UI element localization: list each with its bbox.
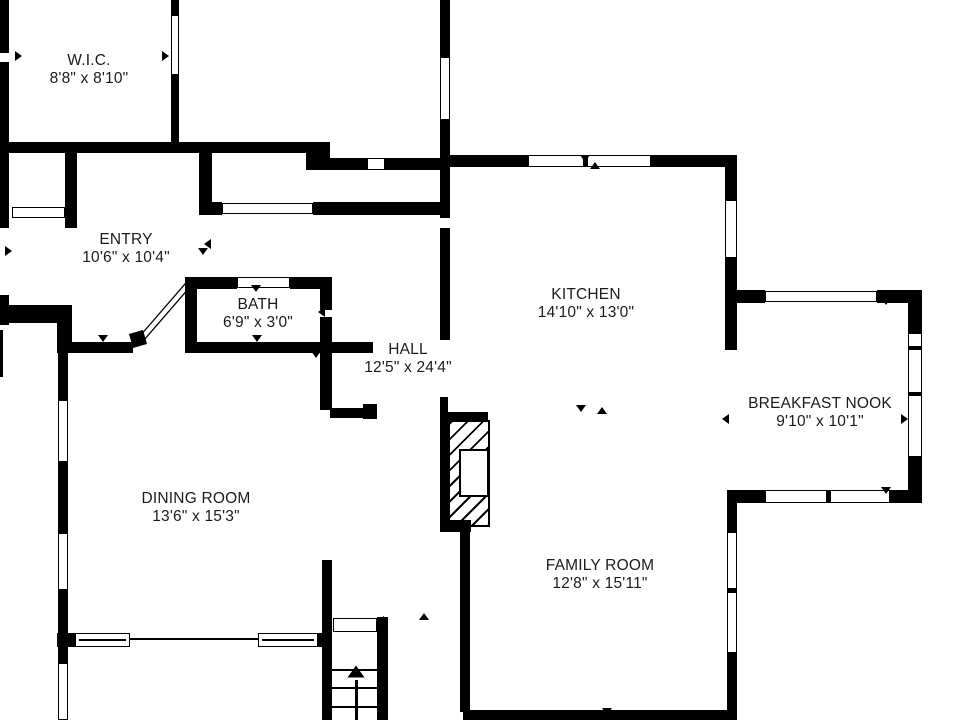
opening-marker-icon: [722, 414, 729, 424]
window: [367, 158, 385, 170]
window: [222, 203, 313, 214]
wall-segment: [890, 490, 922, 503]
room-name-hall: HALL: [364, 341, 452, 359]
room-dimensions-family-room: 12'8" x 15'11": [546, 575, 654, 593]
wall-segment: [57, 633, 75, 647]
room-name-entry: ENTRY: [82, 231, 170, 249]
room-dimensions-kitchen: 14'10" x 13'0": [538, 304, 634, 322]
opening-marker-icon: [901, 414, 908, 424]
room-label-hall: HALL12'5" x 24'4": [364, 341, 452, 377]
window: [333, 618, 377, 632]
door-swing-overlay: [0, 0, 960, 720]
room-label-entry: ENTRY10'6" x 10'4": [82, 231, 170, 267]
room-label-wic: W.I.C.8'8" x 8'10": [50, 52, 129, 88]
wall-segment: [188, 342, 373, 353]
wall-segment: [725, 155, 737, 200]
wall-segment: [171, 75, 179, 145]
opening-marker-icon: [98, 335, 108, 342]
opening-marker-icon: [602, 708, 612, 715]
wall-segment: [440, 120, 450, 218]
wall-segment: [58, 462, 68, 533]
window: [725, 200, 737, 258]
room-name-kitchen: KITCHEN: [538, 286, 634, 304]
wall-segment: [318, 633, 332, 647]
wall-segment: [171, 0, 179, 15]
opening-marker-icon: [311, 351, 321, 358]
room-dimensions-dining-room: 13'6" x 15'3": [142, 508, 251, 526]
wall-segment: [727, 653, 737, 712]
wall-segment: [65, 148, 77, 228]
room-dimensions-hall: 12'5" x 24'4": [364, 359, 452, 377]
opening-marker-icon: [318, 307, 325, 317]
wall-segment: [320, 353, 332, 410]
plan-line: [826, 490, 831, 503]
opening-marker-icon: [580, 155, 590, 162]
window: [440, 57, 450, 120]
room-dimensions-bath: 6'9" x 3'0": [223, 314, 293, 332]
wall-segment: [385, 158, 440, 170]
wall-segment: [725, 258, 737, 350]
window: [765, 291, 877, 302]
room-label-family-room: FAMILY ROOM12'8" x 15'11": [546, 557, 654, 593]
wall-segment: [58, 590, 68, 663]
room-name-dining-room: DINING ROOM: [142, 490, 251, 508]
opening-marker-icon: [590, 162, 600, 169]
opening-marker-icon: [576, 405, 586, 412]
wall-segment: [460, 527, 470, 712]
plan-line: [908, 392, 922, 396]
opening-marker-icon: [377, 616, 384, 626]
room-dimensions-breakfast-nook: 9'10" x 10'1": [748, 413, 892, 431]
wall-segment: [323, 158, 367, 170]
opening-marker-icon: [881, 298, 891, 305]
stairs-up-arrow-icon: [348, 666, 365, 678]
room-label-breakfast-nook: BREAKFAST NOOK9'10" x 10'1": [748, 395, 892, 431]
opening-marker-icon: [881, 487, 891, 494]
wall-segment: [0, 142, 330, 153]
room-name-bath: BATH: [223, 296, 293, 314]
opening-marker-icon: [419, 613, 429, 620]
floor-plan: W.I.C.8'8" x 8'10"ENTRY10'6" x 10'4"BATH…: [0, 0, 960, 720]
plan-line: [355, 680, 358, 720]
wall-segment: [440, 0, 450, 57]
room-label-bath: BATH6'9" x 3'0": [223, 296, 293, 332]
window: [58, 663, 68, 720]
wall-segment: [313, 202, 440, 215]
window: [12, 207, 65, 218]
opening-marker-icon: [15, 51, 22, 61]
wall-segment: [363, 404, 377, 419]
opening-marker-icon: [251, 285, 261, 292]
wall-segment: [0, 0, 9, 53]
window: [171, 15, 179, 75]
room-name-breakfast-nook: BREAKFAST NOOK: [748, 395, 892, 413]
fireplace-firebox: [459, 449, 489, 497]
wall-segment: [908, 290, 922, 333]
room-name-wic: W.I.C.: [50, 52, 129, 70]
wall-segment: [0, 330, 3, 377]
room-dimensions-wic: 8'8" x 8'10": [50, 70, 129, 88]
opening-marker-icon: [252, 335, 262, 342]
wall-segment: [199, 202, 222, 215]
wall-segment: [727, 490, 737, 532]
opening-marker-icon: [198, 248, 208, 255]
window: [58, 533, 68, 590]
window: [237, 277, 290, 288]
wall-segment: [725, 290, 765, 303]
wall-segment: [57, 342, 133, 353]
opening-marker-icon: [162, 51, 169, 61]
wall-segment: [440, 228, 450, 340]
window: [58, 400, 68, 462]
plan-line: [79, 639, 126, 641]
wall-segment: [463, 710, 737, 720]
room-label-kitchen: KITCHEN14'10" x 13'0": [538, 286, 634, 322]
wall-segment: [320, 277, 332, 310]
opening-marker-icon: [597, 407, 607, 414]
opening-marker-icon: [5, 246, 12, 256]
door-leaf-icon: [140, 284, 189, 340]
plan-line: [130, 638, 258, 640]
plan-line: [262, 639, 314, 641]
room-label-dining-room: DINING ROOM13'6" x 15'3": [142, 490, 251, 526]
plan-line: [727, 588, 737, 593]
room-name-family-room: FAMILY ROOM: [546, 557, 654, 575]
wall-segment: [377, 617, 388, 720]
room-dimensions-entry: 10'6" x 10'4": [82, 249, 170, 267]
plan-line: [908, 346, 922, 350]
wall-segment: [443, 155, 528, 167]
wall-segment: [0, 305, 60, 323]
